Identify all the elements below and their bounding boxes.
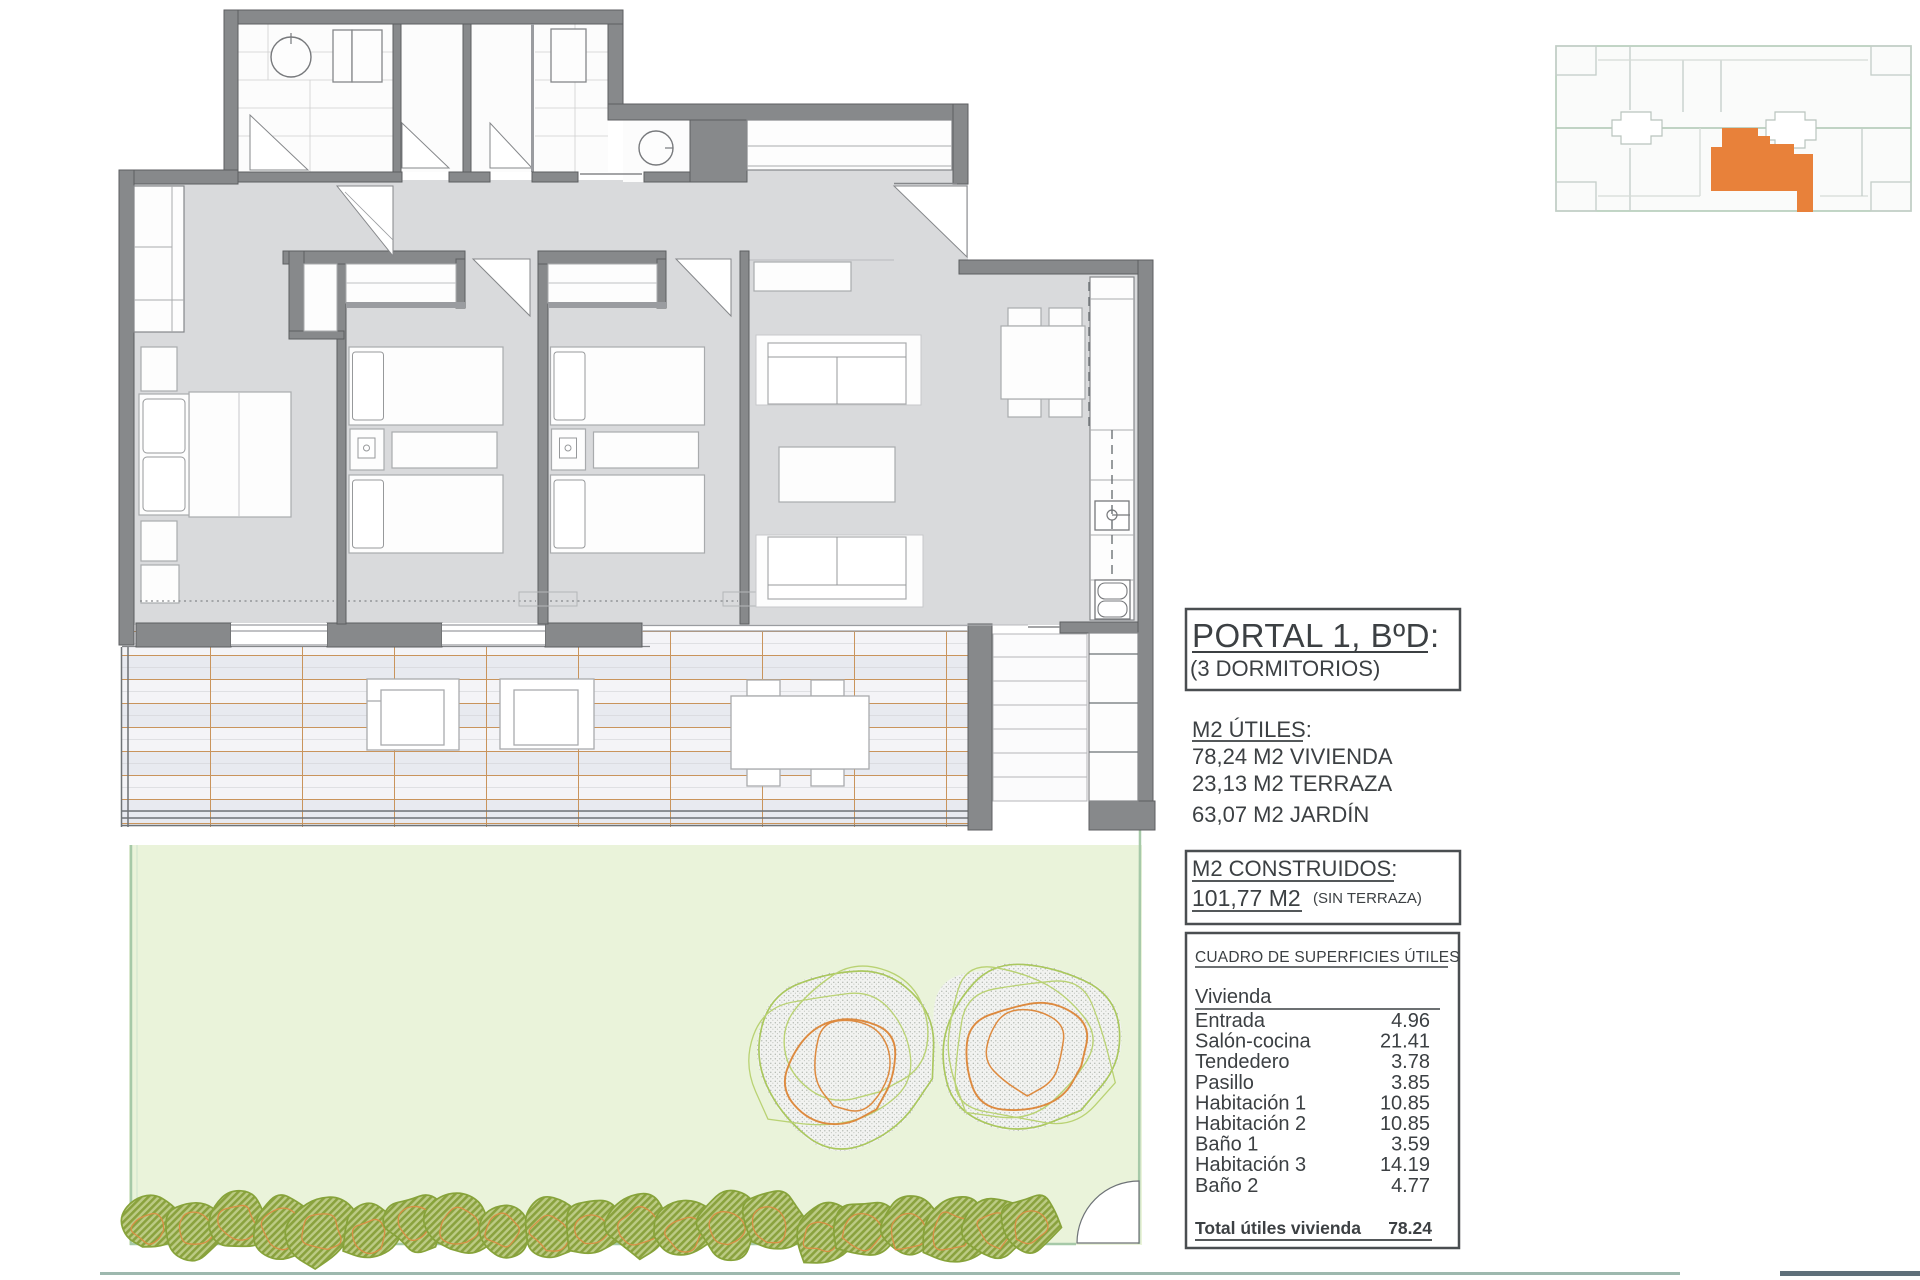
svg-text:3.85: 3.85 [1391, 1072, 1430, 1094]
svg-text:78.24: 78.24 [1388, 1218, 1432, 1238]
svg-text:Habitación 1: Habitación 1 [1195, 1092, 1306, 1114]
svg-text:(3 DORMITORIOS): (3 DORMITORIOS) [1190, 656, 1380, 681]
svg-text:78,24 M2 VIVIENDA: 78,24 M2 VIVIENDA [1192, 744, 1393, 769]
svg-text:Pasillo: Pasillo [1195, 1072, 1254, 1094]
svg-text:Baño 1: Baño 1 [1195, 1134, 1258, 1156]
svg-text:4.77: 4.77 [1391, 1175, 1430, 1197]
svg-text:Baño 2: Baño 2 [1195, 1175, 1258, 1197]
svg-text:Habitación 2: Habitación 2 [1195, 1113, 1306, 1135]
svg-text:Entrada: Entrada [1195, 1010, 1266, 1032]
svg-text:M2 CONSTRUIDOS:: M2 CONSTRUIDOS: [1192, 856, 1397, 881]
svg-text:Total útiles vivienda: Total útiles vivienda [1195, 1218, 1361, 1238]
svg-text:(SIN TERRAZA): (SIN TERRAZA) [1313, 890, 1422, 907]
svg-text:Salón-cocina: Salón-cocina [1195, 1031, 1312, 1053]
svg-text:101,77 M2: 101,77 M2 [1192, 885, 1301, 911]
svg-text:14.19: 14.19 [1380, 1154, 1430, 1176]
svg-text:21.41: 21.41 [1380, 1031, 1430, 1053]
svg-text:CUADRO DE SUPERFICIES ÚTILES: CUADRO DE SUPERFICIES ÚTILES [1195, 949, 1460, 966]
svg-text:Tendedero: Tendedero [1195, 1051, 1290, 1073]
svg-text:Habitación 3: Habitación 3 [1195, 1154, 1306, 1176]
svg-text:63,07 M2 JARDÍN: 63,07 M2 JARDÍN [1192, 802, 1369, 827]
svg-text:PORTAL 1, BºD:: PORTAL 1, BºD: [1192, 617, 1440, 654]
svg-text:3.59: 3.59 [1391, 1134, 1430, 1156]
svg-text:Vivienda: Vivienda [1195, 986, 1272, 1008]
svg-text:4.96: 4.96 [1391, 1010, 1430, 1032]
svg-text:23,13 M2 TERRAZA: 23,13 M2 TERRAZA [1192, 771, 1392, 796]
svg-text:M2 ÚTILES:: M2 ÚTILES: [1192, 717, 1312, 742]
svg-text:10.85: 10.85 [1380, 1092, 1430, 1114]
svg-text:10.85: 10.85 [1380, 1113, 1430, 1135]
svg-text:3.78: 3.78 [1391, 1051, 1430, 1073]
